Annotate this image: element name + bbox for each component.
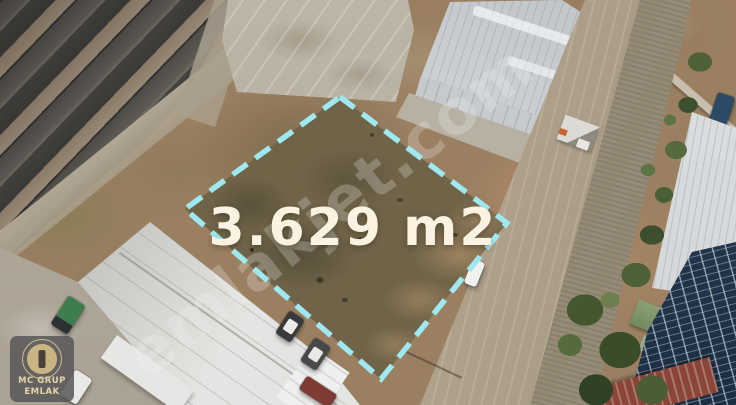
logo-line1: MC GRUP	[10, 376, 74, 387]
aerial-photo: emlakjet.com 3.629 m2 MC GRUP EMLAK	[0, 0, 736, 405]
logo-coin-icon	[27, 344, 57, 374]
plot-area-label: 3.629 m2	[209, 198, 498, 258]
logo-text: MC GRUP EMLAK	[10, 376, 74, 398]
agency-logo: MC GRUP EMLAK	[10, 336, 74, 402]
logo-line2: EMLAK	[10, 387, 74, 398]
logo-figure-icon	[39, 350, 46, 368]
